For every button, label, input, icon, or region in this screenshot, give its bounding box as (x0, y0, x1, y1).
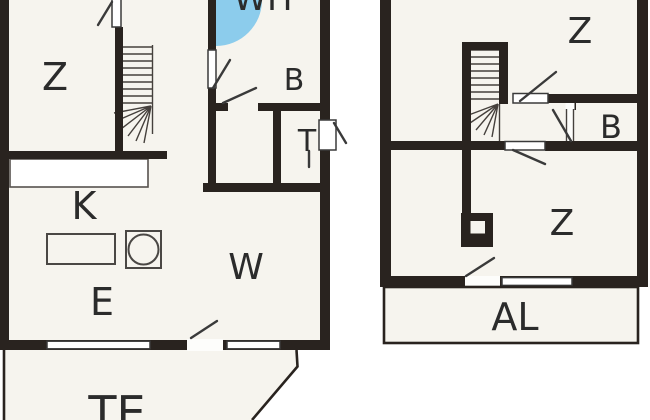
room-label-z-left: Z (42, 55, 68, 99)
room-label-wh: WH (233, 0, 292, 19)
hall-door-frame (505, 142, 545, 151)
room-label-b-right: B (600, 108, 622, 146)
floor-plan-canvas: Z WH B T K W E TE Z B Z AL (0, 0, 650, 420)
kitchen-counter (10, 159, 148, 187)
door-frame-bath (208, 50, 216, 88)
window (227, 341, 280, 349)
floor-plan: Z WH B T K W E TE Z B Z AL (0, 0, 650, 420)
entrance-door-gap (187, 339, 223, 351)
window (47, 341, 150, 349)
window (502, 278, 572, 286)
door-frame-z-left (112, 0, 121, 27)
side-door-gap (319, 120, 336, 150)
door-frame-z-top (513, 94, 548, 104)
room-label-e: E (90, 280, 114, 324)
room-label-al: AL (491, 295, 538, 339)
room-label-w: W (228, 247, 264, 288)
room-label-z-bottom-right: Z (550, 203, 575, 244)
room-label-k: K (72, 184, 98, 228)
balcony-door-gap (465, 276, 500, 287)
chimney-flue (471, 221, 486, 234)
room-label-z-top-right: Z (568, 11, 593, 52)
terrace-floor (4, 350, 297, 420)
room-label-b-left: B (284, 63, 305, 98)
room-label-te: TE (87, 386, 145, 420)
room-label-t: T (297, 124, 317, 159)
